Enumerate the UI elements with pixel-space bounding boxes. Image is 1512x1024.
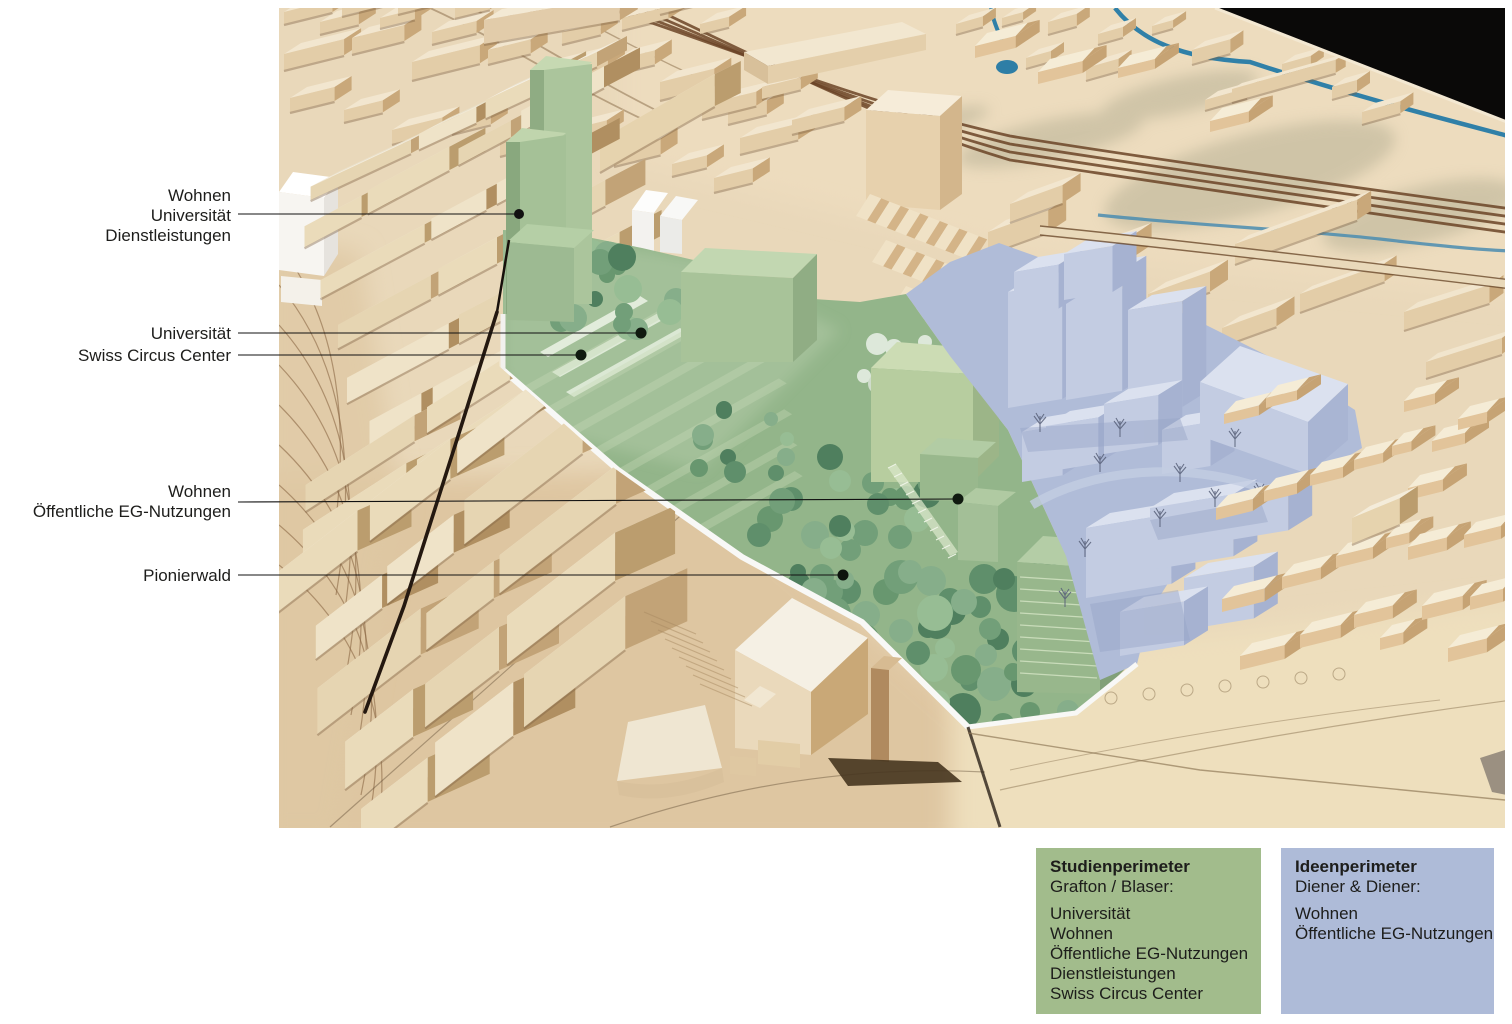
svg-text:Universität: Universität [151, 206, 232, 225]
svg-text:Grafton / Blaser:: Grafton / Blaser: [1050, 877, 1174, 896]
svg-text:Dienstleistungen: Dienstleistungen [1050, 964, 1176, 983]
svg-text:Wohnen: Wohnen [168, 482, 231, 501]
svg-text:Swiss Circus Center: Swiss Circus Center [78, 346, 231, 365]
svg-text:Pionierwald: Pionierwald [143, 566, 231, 585]
svg-text:Universität: Universität [1050, 904, 1131, 923]
svg-text:Swiss Circus Center: Swiss Circus Center [1050, 984, 1203, 1003]
svg-text:Dienstleistungen: Dienstleistungen [105, 226, 231, 245]
svg-text:Wohnen: Wohnen [168, 186, 231, 205]
svg-text:Öffentliche EG-Nutzungen: Öffentliche EG-Nutzungen [33, 502, 231, 521]
svg-text:Öffentliche EG-Nutzungen: Öffentliche EG-Nutzungen [1050, 944, 1248, 963]
svg-text:Öffentliche EG-Nutzungen: Öffentliche EG-Nutzungen [1295, 924, 1493, 943]
svg-text:Diener & Diener:: Diener & Diener: [1295, 877, 1421, 896]
svg-text:Studienperimeter: Studienperimeter [1050, 857, 1190, 876]
svg-text:Wohnen: Wohnen [1050, 924, 1113, 943]
svg-text:Universität: Universität [151, 324, 232, 343]
svg-text:Ideenperimeter: Ideenperimeter [1295, 857, 1417, 876]
svg-text:Wohnen: Wohnen [1295, 904, 1358, 923]
